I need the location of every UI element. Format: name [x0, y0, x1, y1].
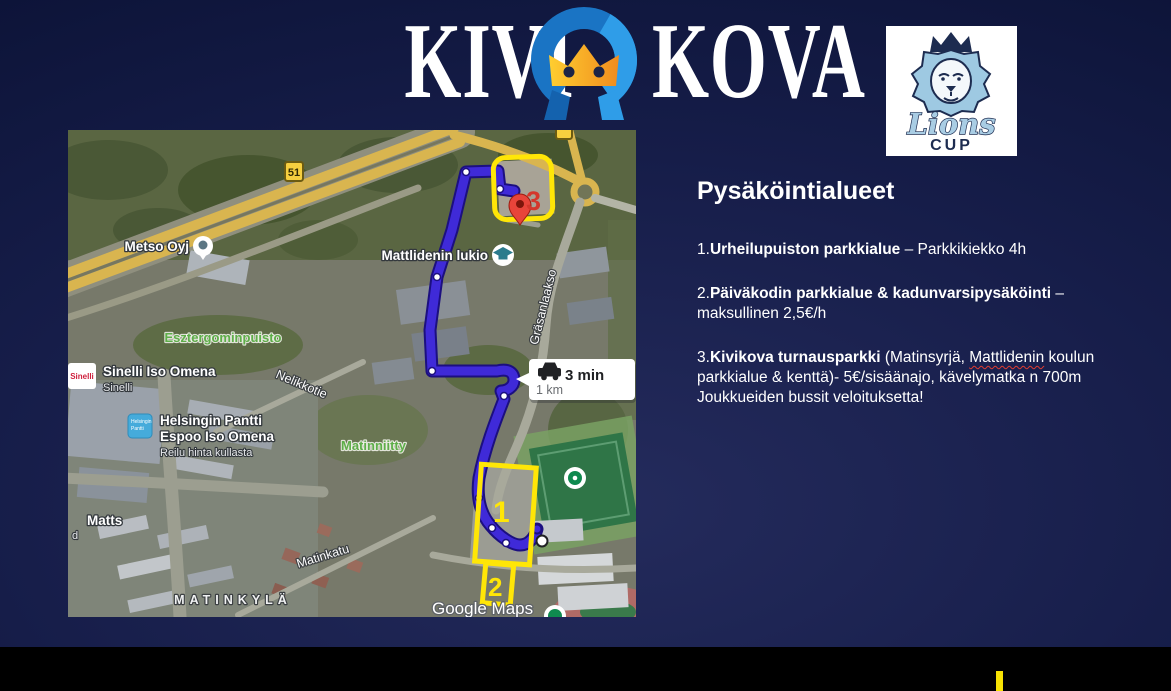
parking-item-3: 3.Kivikova turnausparkki (Matinsyrjä, Ma…: [697, 348, 1139, 408]
lions-script-text: Lions: [906, 107, 995, 141]
parking-item-1: 1.Urheilupuiston parkkialue – Parkkikiek…: [697, 240, 1139, 260]
svg-text:Helsingin: Helsingin: [131, 419, 152, 425]
google-maps-watermark: Google Maps: [432, 599, 533, 617]
parking-area-1-number: 1: [493, 496, 510, 529]
presentation-screen: KIVI KOVA Lion: [0, 0, 1171, 691]
pin-3-number: 3: [526, 186, 541, 216]
poi-pantti-line1: Helsingin Pantti: [160, 413, 262, 428]
park-label-matinniitty: Matinniitty: [341, 438, 407, 453]
route-info-bubble: 3 min 1 km: [516, 359, 636, 403]
road-badge-top: [556, 130, 572, 139]
road-badge-51: 51: [285, 162, 303, 181]
sinelli-logo: Sinelli: [70, 372, 94, 381]
poi-pantti-tagline: Reilu hinta kullasta: [160, 447, 253, 459]
lion-face: [931, 59, 971, 103]
poi-dot: [537, 536, 548, 547]
slide-background: KIVI KOVA Lion: [0, 0, 1171, 647]
crown-icon: [549, 44, 619, 86]
cup-text: CUP: [930, 137, 973, 154]
park-label-esztergominpuisto: Esztergominpuisto: [164, 330, 281, 345]
parking-item-2: 2.Päiväkodin parkkialue & kadunvarsipysä…: [697, 284, 1139, 324]
svg-text:Pantti: Pantti: [131, 426, 144, 432]
poi-matts-fragment: d: [72, 530, 78, 542]
poi-lukio-label: Mattlidenin lukio: [382, 248, 489, 263]
poi-pantti-line2: Espoo Iso Omena: [160, 429, 275, 444]
district-label: MATINKYLÄ: [174, 592, 292, 607]
crown-omega-emblem-icon: [516, 2, 652, 124]
misspelled-word: Mattlidenin: [969, 349, 1044, 366]
parking-info-panel: Pysäköintialueet 1.Urheilupuiston parkki…: [697, 176, 1139, 432]
logo-word-kivi: KIVI: [404, 8, 520, 116]
poi-matts-label: Matts: [87, 513, 122, 528]
logo-word-kova: KOVA: [652, 8, 866, 116]
poi-sinelli-sub: Sinelli: [103, 382, 132, 394]
page-title: Pysäköintialueet: [697, 176, 1139, 206]
badge-51-label: 51: [288, 167, 300, 179]
lions-cup-badge: Lions CUP: [886, 26, 1017, 156]
yellow-marker-bar: [996, 671, 1003, 691]
map-screenshot: 51 1 2: [68, 130, 636, 617]
poi-sinelli-label: Sinelli Iso Omena: [103, 364, 216, 379]
parking-area-2-number: 2: [488, 572, 502, 602]
poi-metso-label: Metso Oyj: [124, 239, 189, 254]
route-distance: 1 km: [536, 383, 563, 397]
route-duration: 3 min: [565, 367, 604, 384]
park-marker-green: [564, 467, 586, 489]
